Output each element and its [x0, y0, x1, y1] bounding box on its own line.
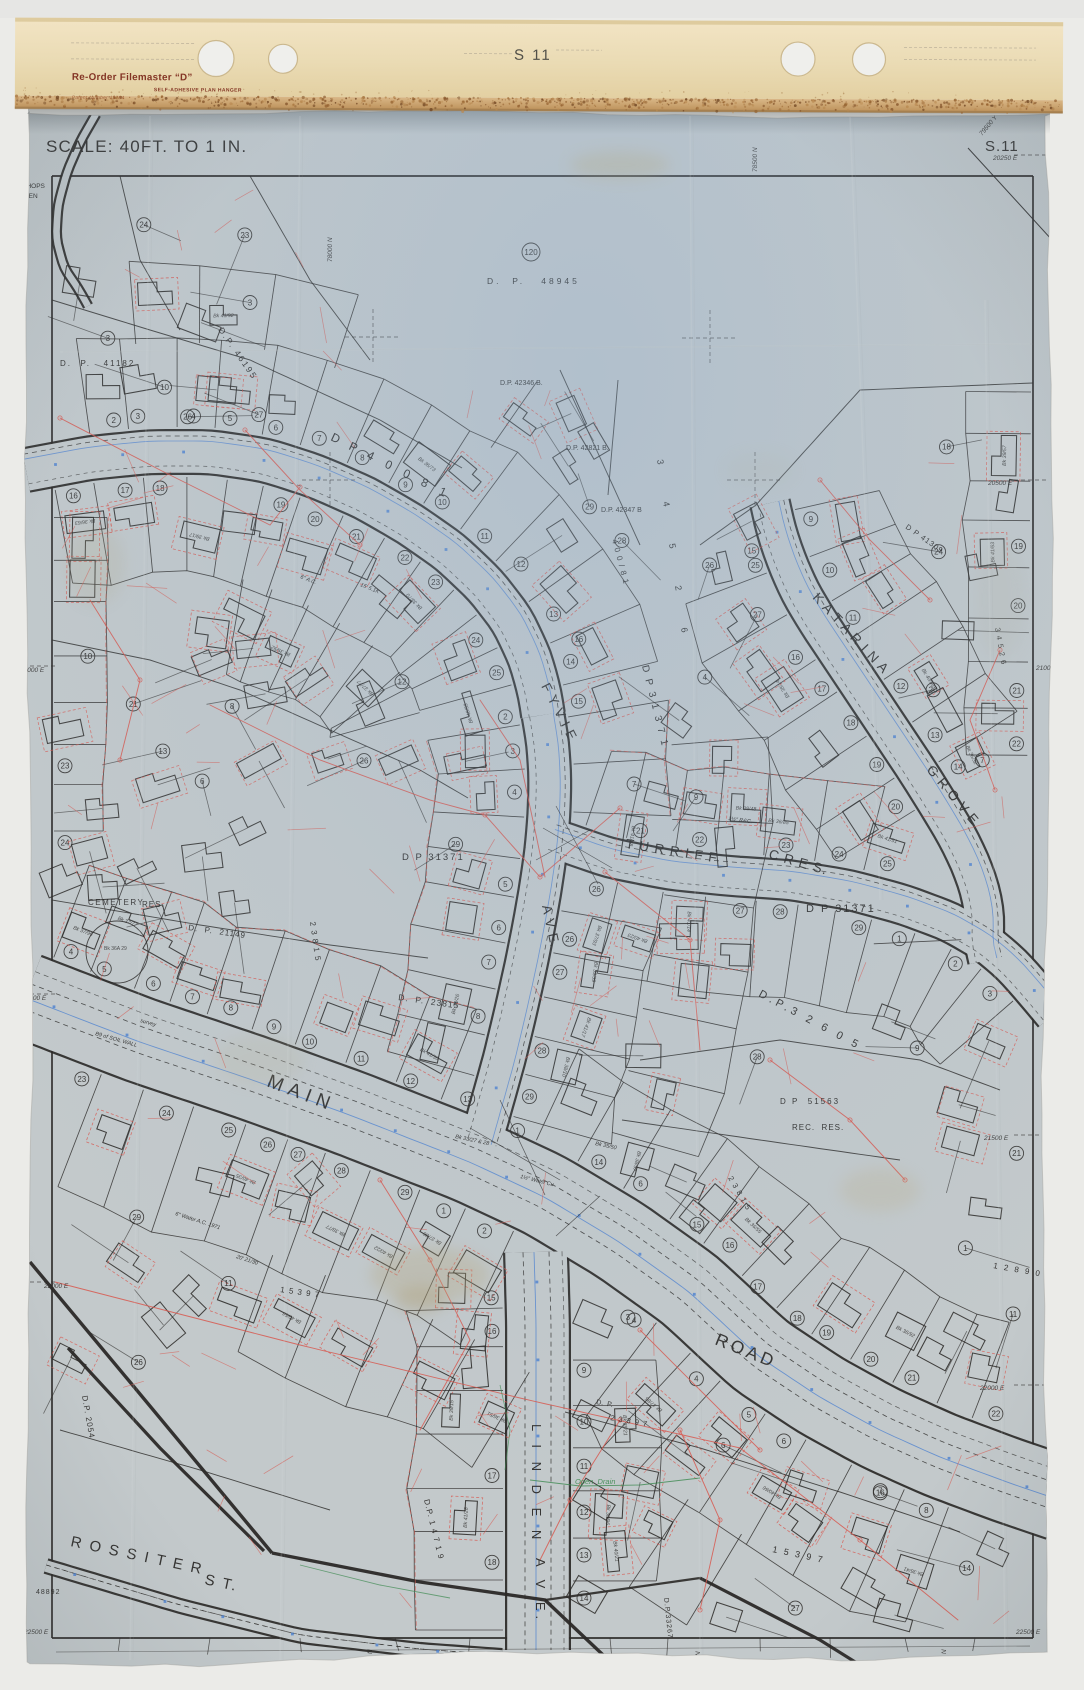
svg-text:SELF-ADHESIVE PLAN HANGER: SELF-ADHESIVE PLAN HANGER [154, 87, 242, 93]
svg-text:S 11: S 11 [514, 47, 552, 64]
svg-text:Patent Number 13784: Patent Number 13784 [72, 95, 125, 101]
svg-text:Re-Order Filemaster “D”: Re-Order Filemaster “D” [72, 72, 193, 84]
